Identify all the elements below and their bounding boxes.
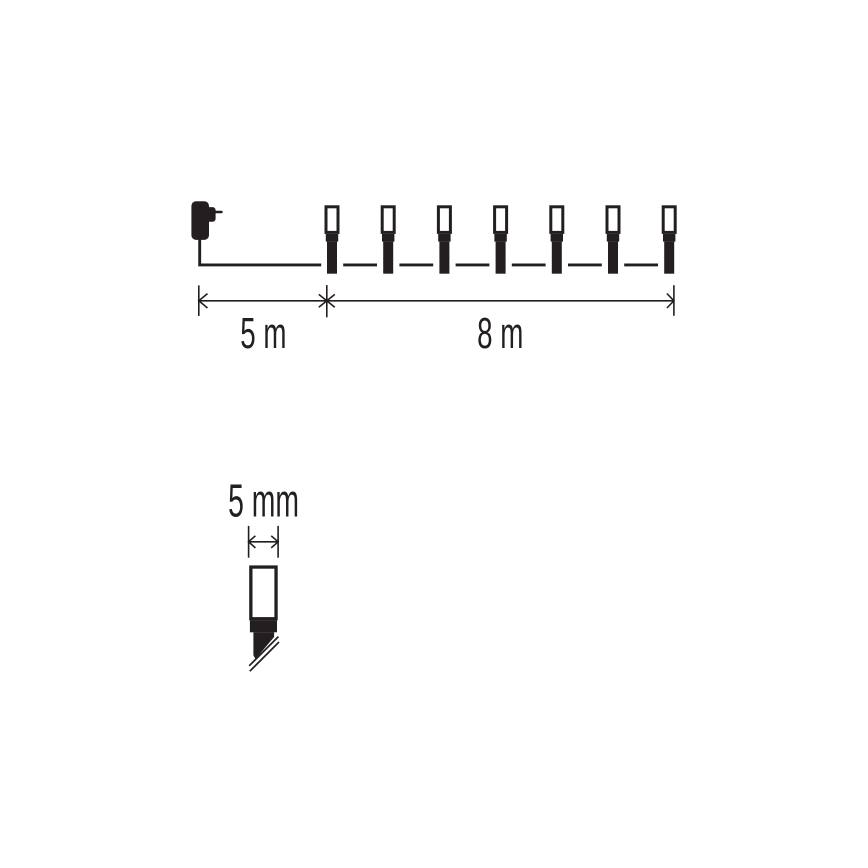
svg-text:8 m: 8 m	[477, 309, 523, 358]
svg-text:5 m: 5 m	[240, 309, 286, 358]
svg-text:5 mm: 5 mm	[228, 476, 299, 528]
